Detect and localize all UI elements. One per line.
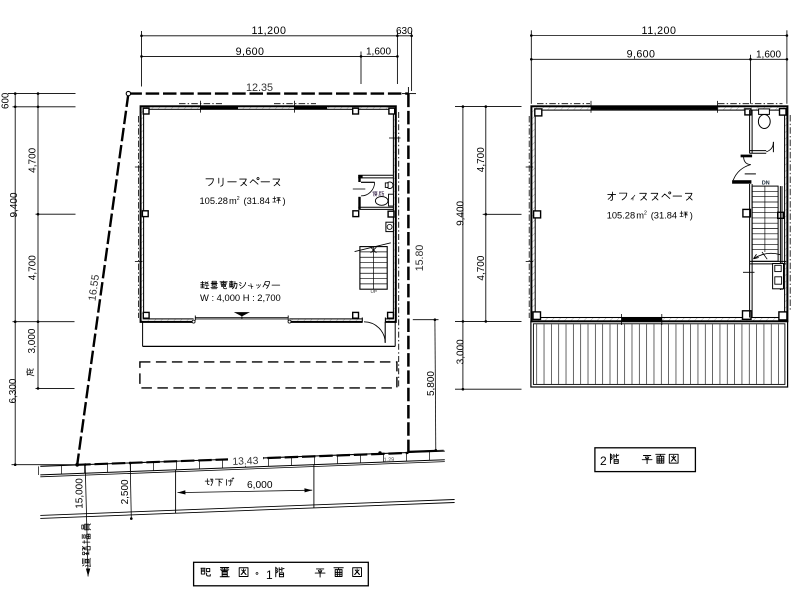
svg-text:1.29: 1.29 xyxy=(384,457,395,463)
svg-text:): ) xyxy=(283,196,286,206)
svg-text:(31.84: (31.84 xyxy=(244,196,270,206)
svg-text:m: m xyxy=(636,210,644,220)
svg-text:600: 600 xyxy=(1,92,12,109)
svg-text:1,600: 1,600 xyxy=(366,47,391,58)
svg-text:2: 2 xyxy=(237,196,240,202)
svg-text:11,200: 11,200 xyxy=(252,25,287,37)
svg-text:6,300: 6,300 xyxy=(8,378,19,403)
svg-text:9,600: 9,600 xyxy=(236,46,265,58)
svg-text:9,600: 9,600 xyxy=(627,49,656,61)
svg-text:6,000: 6,000 xyxy=(247,480,273,491)
svg-text:): ) xyxy=(690,210,693,220)
svg-text:3,000: 3,000 xyxy=(27,328,38,353)
svg-text:W : 4,000 H : 2,700: W : 4,000 H : 2,700 xyxy=(200,292,281,303)
svg-text:630: 630 xyxy=(396,26,413,37)
svg-text:12.35: 12.35 xyxy=(246,82,273,94)
svg-text:3,000: 3,000 xyxy=(455,339,466,364)
svg-text:9,400: 9,400 xyxy=(9,192,20,217)
svg-text:11,200: 11,200 xyxy=(642,25,677,37)
svg-text:2: 2 xyxy=(644,211,647,217)
svg-text:5,800: 5,800 xyxy=(426,371,437,396)
svg-text:105.28: 105.28 xyxy=(200,196,228,206)
svg-text:4,700: 4,700 xyxy=(476,147,487,172)
svg-text:m: m xyxy=(229,196,237,206)
svg-text:1,600: 1,600 xyxy=(756,49,781,60)
svg-text:13.43: 13.43 xyxy=(232,456,259,468)
svg-text:2,500: 2,500 xyxy=(120,479,131,504)
svg-text:15.80: 15.80 xyxy=(414,245,426,272)
svg-text:15,000: 15,000 xyxy=(75,478,86,509)
svg-text:4,700: 4,700 xyxy=(28,147,39,172)
svg-text:105.28: 105.28 xyxy=(607,210,635,220)
svg-text:4,700: 4,700 xyxy=(476,255,487,280)
svg-text:2: 2 xyxy=(600,454,607,468)
svg-text:9,400: 9,400 xyxy=(455,200,466,225)
svg-text:(31.84: (31.84 xyxy=(651,210,677,220)
svg-text:1: 1 xyxy=(266,568,273,582)
svg-text:4,700: 4,700 xyxy=(28,255,39,280)
svg-text:UP: UP xyxy=(371,289,377,294)
